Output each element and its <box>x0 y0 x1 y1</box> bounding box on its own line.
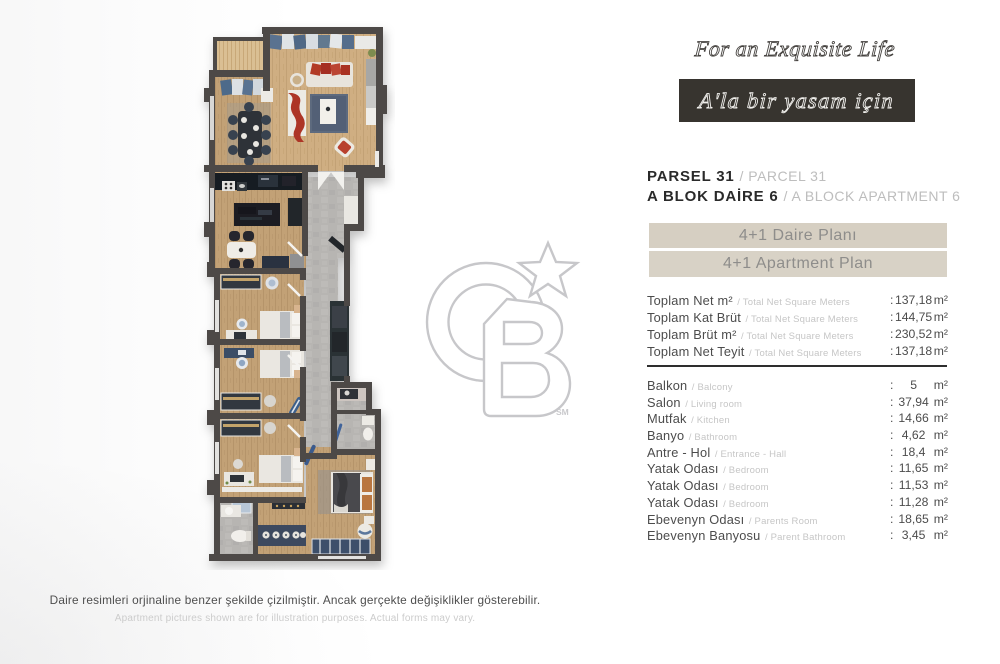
svg-text:SM: SM <box>556 407 569 417</box>
